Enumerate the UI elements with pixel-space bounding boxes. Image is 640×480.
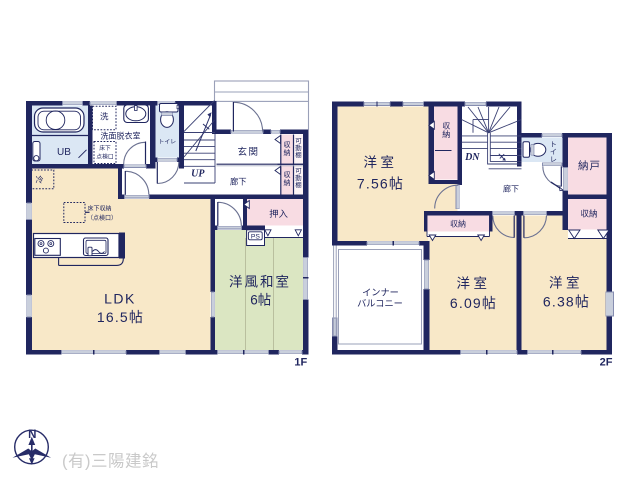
svg-text:床下: 床下 <box>99 144 111 152</box>
svg-text:納: 納 <box>442 129 450 139</box>
svg-text:動: 動 <box>295 173 301 182</box>
svg-text:収: 収 <box>284 171 291 179</box>
svg-text:ト: ト <box>550 142 557 149</box>
svg-text:UB: UB <box>57 147 71 158</box>
svg-text:PS: PS <box>251 234 261 241</box>
svg-text:1F: 1F <box>294 356 307 368</box>
svg-text:洋風和室: 洋風和室 <box>229 274 291 290</box>
svg-text:DN: DN <box>464 152 480 163</box>
svg-text:洋室: 洋室 <box>364 154 398 170</box>
svg-text:（点検口）: （点検口） <box>87 214 117 222</box>
svg-text:洗面脱衣室: 洗面脱衣室 <box>101 131 141 141</box>
svg-text:2F: 2F <box>600 356 613 368</box>
svg-text:洋室: 洋室 <box>457 275 491 291</box>
svg-text:点検口: 点検口 <box>96 153 114 161</box>
svg-text:納: 納 <box>284 148 291 157</box>
svg-text:6.38帖: 6.38帖 <box>543 293 590 309</box>
svg-text:(有)三陽建銘: (有)三陽建銘 <box>62 452 159 471</box>
svg-text:動: 動 <box>295 143 301 152</box>
svg-text:棚: 棚 <box>295 150 301 159</box>
svg-text:収納: 収納 <box>580 209 597 219</box>
svg-text:収納: 収納 <box>450 218 466 228</box>
svg-text:イ: イ <box>550 149 557 156</box>
svg-text:収: 収 <box>284 141 291 149</box>
svg-text:廊下: 廊下 <box>503 184 519 194</box>
svg-text:6.09帖: 6.09帖 <box>450 295 497 311</box>
svg-text:6帖: 6帖 <box>250 292 271 307</box>
svg-text:床下収納: 床下収納 <box>88 205 112 213</box>
svg-text:インナー: インナー <box>362 287 399 297</box>
svg-text:玄関: 玄関 <box>237 146 259 158</box>
svg-text:バルコニー: バルコニー <box>357 299 403 309</box>
svg-text:7.56帖: 7.56帖 <box>357 175 404 191</box>
svg-text:押入: 押入 <box>269 208 288 219</box>
svg-text:納戸: 納戸 <box>578 159 601 172</box>
svg-text:洋室: 洋室 <box>549 275 583 291</box>
svg-text:洗: 洗 <box>100 111 109 121</box>
svg-text:棚: 棚 <box>295 180 301 189</box>
svg-text:16.5帖: 16.5帖 <box>97 309 144 325</box>
svg-text:納: 納 <box>284 178 291 187</box>
svg-text:トイレ: トイレ <box>158 140 176 146</box>
svg-text:廊下: 廊下 <box>230 177 247 187</box>
svg-text:冷: 冷 <box>36 175 44 185</box>
svg-text:UP: UP <box>191 168 205 179</box>
svg-text:LDK: LDK <box>104 291 136 307</box>
svg-text:収: 収 <box>442 120 450 130</box>
svg-text:レ: レ <box>550 157 557 164</box>
svg-text:可: 可 <box>295 167 302 175</box>
svg-text:可: 可 <box>295 137 302 145</box>
